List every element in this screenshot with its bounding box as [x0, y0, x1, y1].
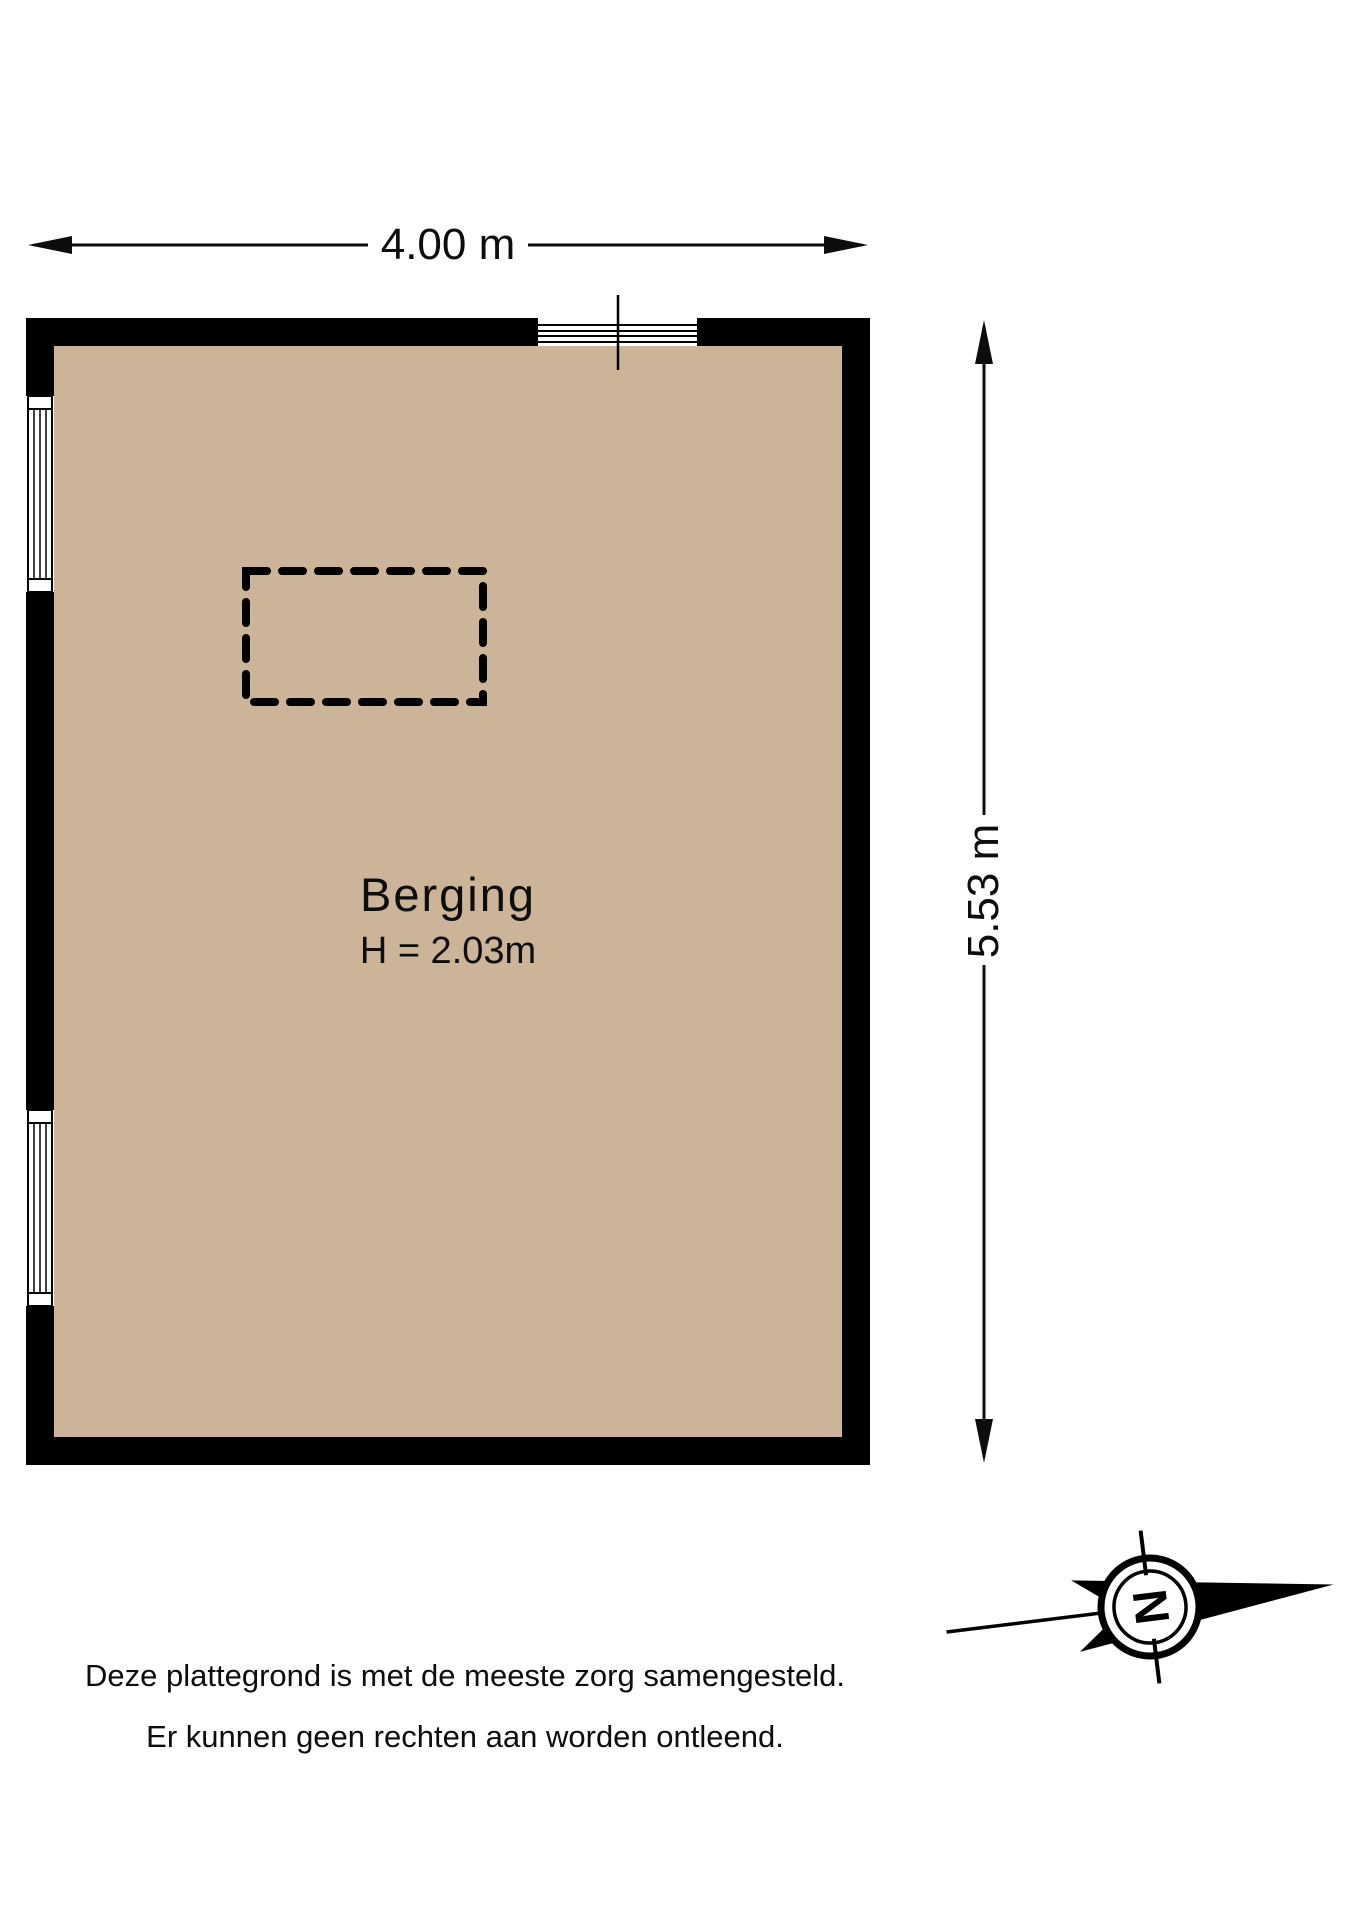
room-name-label: Berging: [298, 872, 598, 918]
wall-left-upper-segment: [26, 318, 54, 396]
width-dimension-label: 4.00 m: [338, 218, 558, 272]
arrowhead-up: [975, 320, 993, 364]
wall-bottom: [26, 1437, 870, 1465]
height-dimension-label: 5.53 m: [962, 781, 1006, 1001]
wall-top-left-segment: [26, 318, 538, 346]
disclaimer-line-2: Er kunnen geen rechten aan worden ontlee…: [15, 1706, 915, 1767]
disclaimer: Deze plattegrond is met de meeste zorg s…: [15, 1645, 915, 1767]
arrowhead-left: [28, 236, 72, 254]
window-left-lower: [28, 1110, 52, 1306]
floorplan-page: N 4.00 m 5.53 m Berging H = 2.03m Deze p…: [0, 0, 1358, 1920]
arrowhead-down: [975, 1419, 993, 1463]
compass-north-letter: N: [1122, 1587, 1179, 1628]
wall-left-middle-segment: [26, 592, 54, 1110]
floorplan-canvas: N: [0, 0, 1358, 1920]
room-height-label: H = 2.03m: [298, 931, 598, 971]
wall-right: [842, 318, 870, 1465]
window-left-upper: [28, 396, 52, 592]
compass: N: [937, 1508, 1343, 1708]
disclaimer-line-1: Deze plattegrond is met de meeste zorg s…: [15, 1645, 915, 1706]
arrowhead-right: [824, 236, 868, 254]
